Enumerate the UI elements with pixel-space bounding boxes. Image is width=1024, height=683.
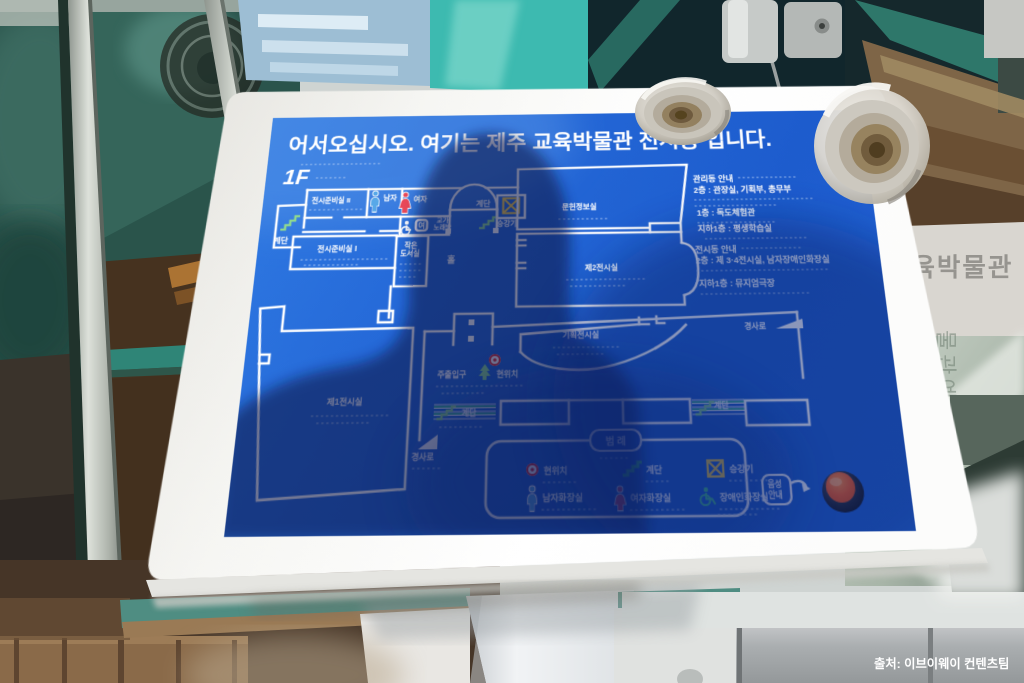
svg-text:출처: 이브이웨이 컨텐츠팀: 출처: 이브이웨이 컨텐츠팀 bbox=[874, 656, 1009, 671]
